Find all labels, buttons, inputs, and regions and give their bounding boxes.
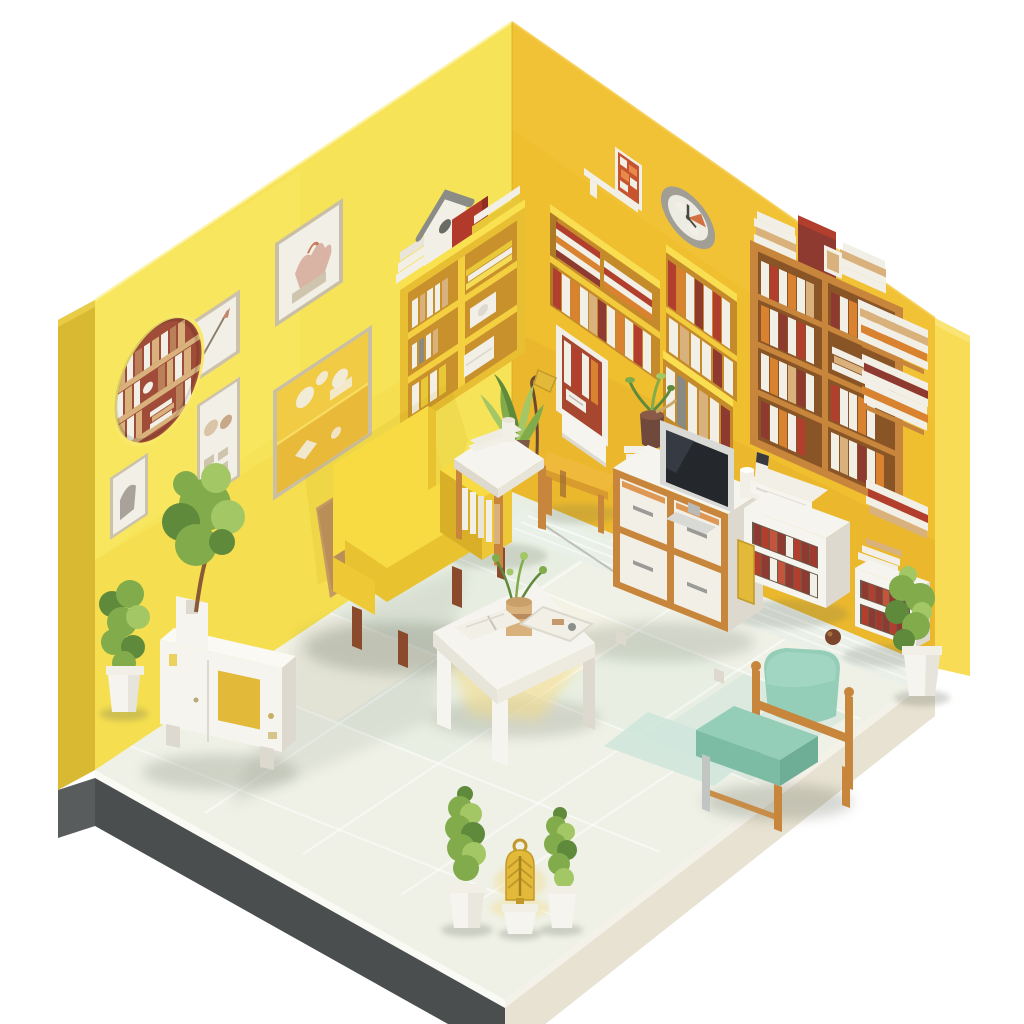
room-canvas: Isometric 3D illustration of a cozy yell…: [0, 0, 1024, 1024]
decor-ball: [825, 629, 841, 645]
isometric-room-illustration: Isometric 3D illustration of a cozy yell…: [0, 0, 1024, 1024]
